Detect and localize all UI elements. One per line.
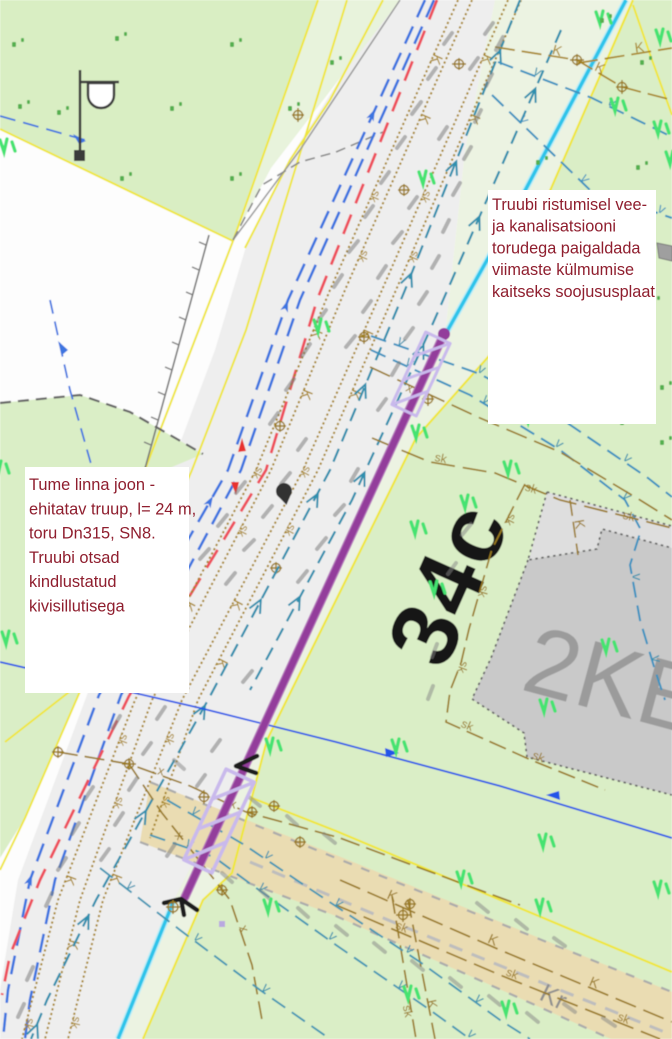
svg-text:viimaste külmumise: viimaste külmumise <box>492 261 634 279</box>
svg-text:Truubi otsad: Truubi otsad <box>29 549 120 567</box>
svg-text:torudega paigaldada: torudega paigaldada <box>492 239 641 257</box>
svg-text:v: v <box>629 573 645 580</box>
svg-text:kindlustatud: kindlustatud <box>29 573 116 591</box>
svg-text:toru Dn315, SN8.: toru Dn315, SN8. <box>29 525 156 543</box>
svg-text:kivisillutisega: kivisillutisega <box>29 598 126 616</box>
svg-text:ehitatav truup, l= 24 m,: ehitatav truup, l= 24 m, <box>29 500 196 518</box>
svg-text:Tume linna joon -: Tume linna joon - <box>29 476 155 494</box>
svg-text:kaitseks soojususplaat: kaitseks soojususplaat <box>492 283 655 301</box>
svg-text:Truubi ristumisel vee-: Truubi ristumisel vee- <box>492 196 647 214</box>
svg-text:ja kanalisatsiooni: ja kanalisatsiooni <box>491 218 616 236</box>
